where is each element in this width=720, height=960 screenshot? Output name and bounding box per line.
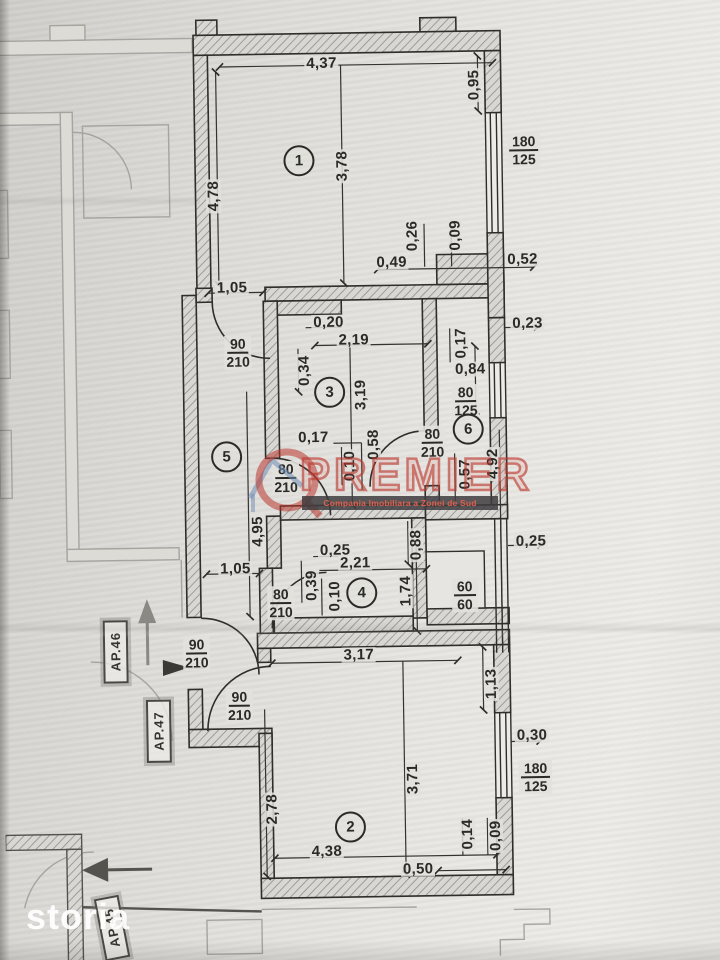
paper-edge-shadow	[0, 0, 10, 960]
paper-edge-shadow	[0, 940, 720, 960]
paper-crease	[0, 622, 720, 638]
neighbor-structure	[0, 18, 550, 960]
walls	[178, 16, 514, 900]
entrance-arrow-icon	[163, 659, 205, 676]
storia-watermark: storia	[26, 896, 130, 938]
floor-plan-drawing	[0, 0, 720, 960]
left-arrow-icon	[82, 857, 152, 882]
floor-plan-photo: 4,370,953,784,780,260,090,490,521,050,20…	[0, 0, 720, 960]
paper-crease	[0, 196, 200, 206]
plan-tilt-wrapper: 4,370,953,784,780,260,090,490,521,050,20…	[0, 0, 720, 960]
